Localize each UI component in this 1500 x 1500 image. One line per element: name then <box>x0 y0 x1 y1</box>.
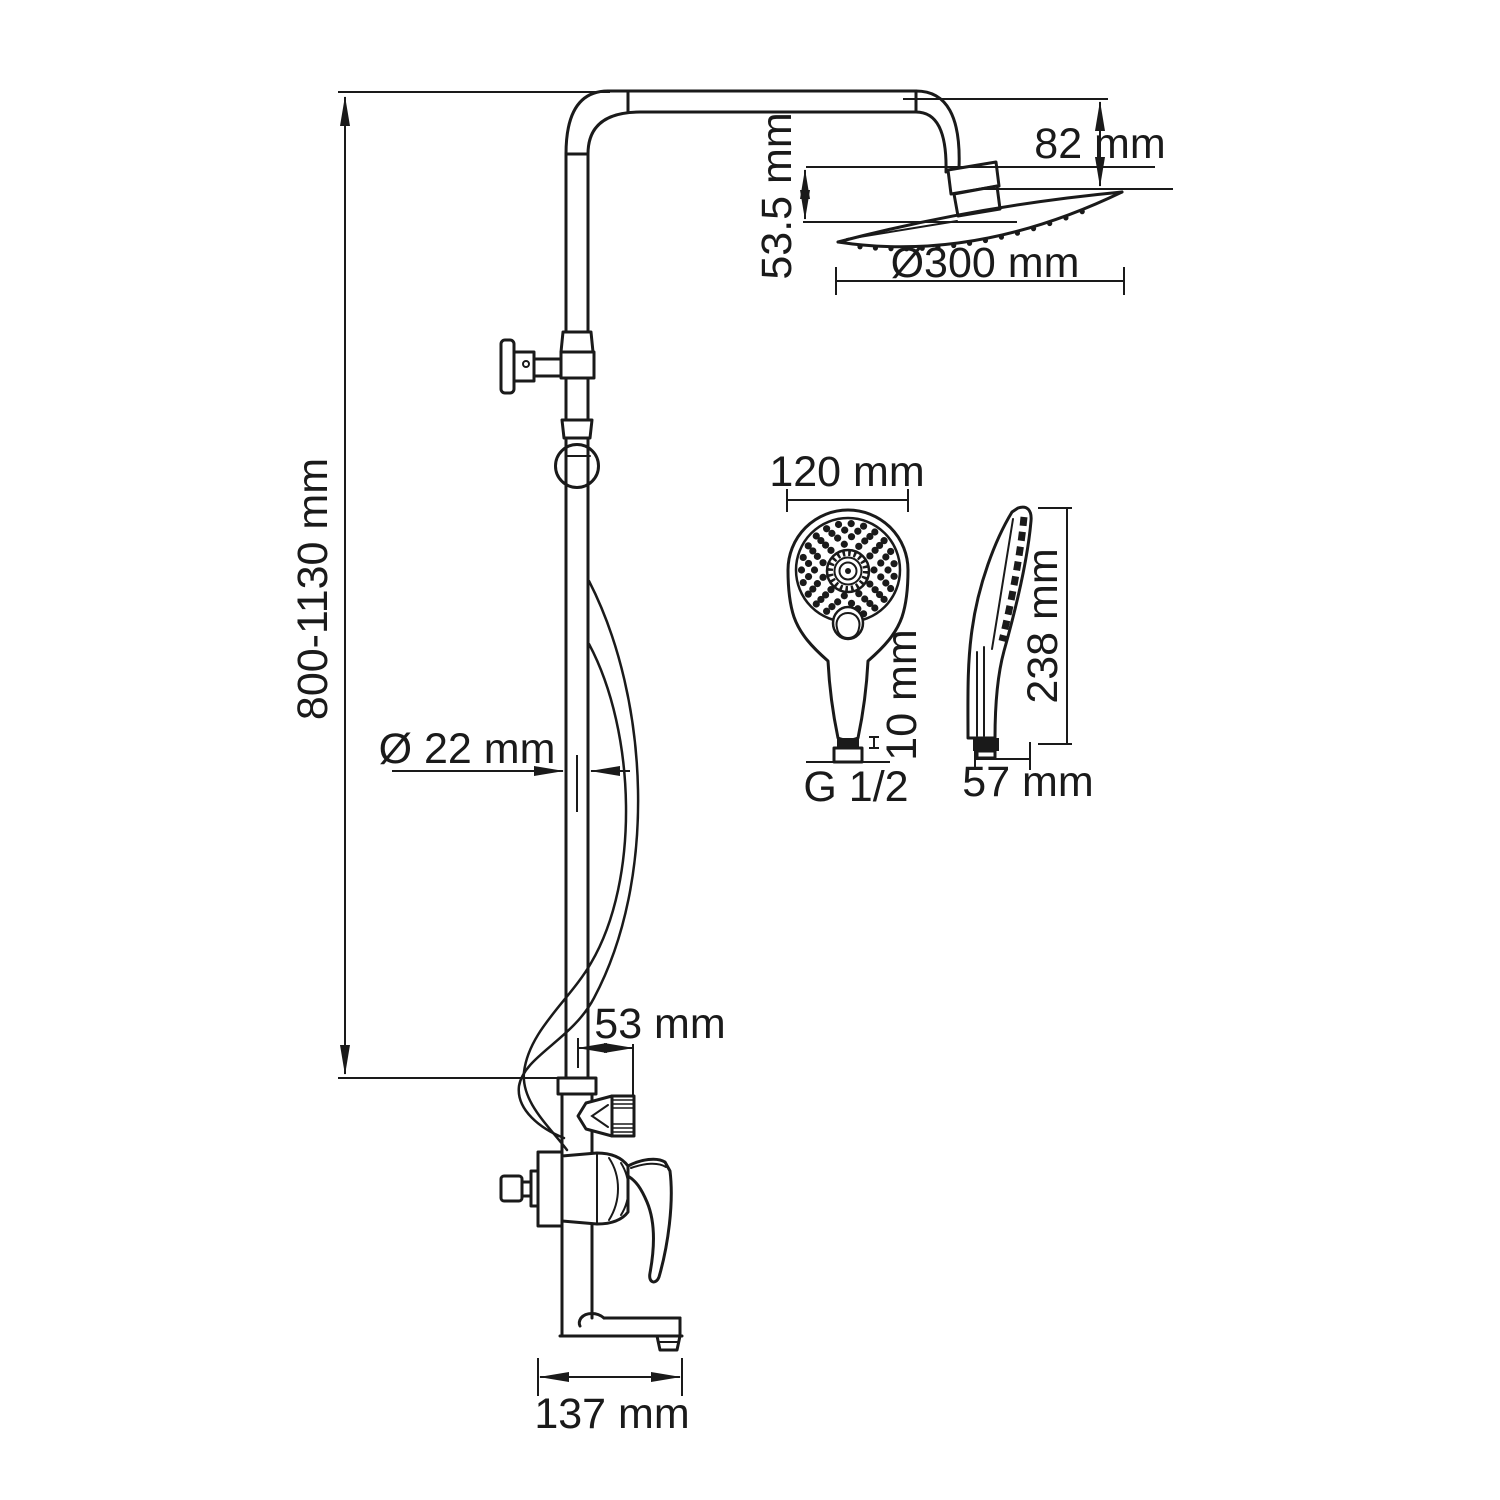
holder-knob <box>501 340 514 393</box>
hand-shower-width-dimension: 120 mm <box>769 448 924 512</box>
rain-shower-head <box>838 162 1122 251</box>
outlet-offset-label: 53 mm <box>594 1000 725 1048</box>
escutcheon-plate <box>538 1152 562 1226</box>
connector-nut <box>834 748 862 762</box>
nozzle-dot <box>1080 209 1085 214</box>
hand-shower-depth-label: 57 mm <box>962 758 1093 806</box>
side-connector-nut <box>973 738 999 751</box>
mixer-body-top <box>558 1078 596 1094</box>
nozzle-dot <box>800 554 807 561</box>
nozzle-dot <box>805 560 812 567</box>
nozzle-dot <box>855 543 862 550</box>
overall-height-label: 800-1130 mm <box>289 458 337 720</box>
nozzle-dot <box>854 528 861 535</box>
mixer-handle <box>628 1159 671 1282</box>
nozzle-dot <box>800 579 807 586</box>
head-drop-label: 82 mm <box>1034 120 1165 168</box>
spout-length-dimension: 137 mm <box>534 1358 689 1438</box>
pipe-diameter-label: Ø 22 mm <box>379 725 556 773</box>
thread-size-label: G 1/2 <box>803 763 908 811</box>
nozzle-dot <box>848 533 855 540</box>
nozzle-dot <box>871 528 878 535</box>
spout <box>560 1314 682 1351</box>
nozzle-dot <box>880 596 887 603</box>
nozzle-dot <box>827 547 834 554</box>
thread-length-label: 10 mm <box>878 629 926 760</box>
nozzle-dot <box>841 541 848 548</box>
nozzle-dot <box>841 527 848 534</box>
slider-holder <box>501 332 594 438</box>
nozzle-dot <box>880 537 887 544</box>
technical-drawing-canvas: 800-1130 mm Ø 22 mm <box>0 0 1500 1500</box>
nozzle-dot <box>1031 226 1036 231</box>
nozzle-dot <box>811 566 818 573</box>
nozzle-dot <box>887 548 894 555</box>
nozzle-dot <box>873 245 878 250</box>
overall-height-dimension: 800-1130 mm <box>289 92 610 1078</box>
spout-length-label: 137 mm <box>534 1390 689 1438</box>
nozzle-dot <box>819 574 826 581</box>
nozzle-dot <box>890 560 897 567</box>
nozzle-dot <box>877 559 884 566</box>
outlet-offset-dimension: 53 mm <box>578 1000 726 1098</box>
nozzle-dot <box>813 600 820 607</box>
mixer <box>501 1078 671 1336</box>
nozzle-dot <box>834 598 841 605</box>
hand-shower-width-label: 120 mm <box>769 448 924 496</box>
riser-pipe <box>566 154 588 1078</box>
nozzle-dot <box>835 521 842 528</box>
thread-length-dimension: 10 mm <box>869 629 926 760</box>
shower-system-drawing: 800-1130 mm Ø 22 mm <box>0 0 1500 1500</box>
nozzle-dot <box>887 585 894 592</box>
nozzle-dot <box>870 566 877 573</box>
nozzle-dot <box>860 523 867 530</box>
nozzle-dot <box>823 525 830 532</box>
nozzle-dot <box>857 244 862 249</box>
nozzle-dot <box>805 591 812 598</box>
nozzle-dot <box>1063 215 1068 220</box>
nozzle-dot <box>866 552 873 559</box>
pipe-diameter-dimension: Ø 22 mm <box>379 725 630 812</box>
nozzle-dot <box>819 559 826 566</box>
nozzle-dot <box>1047 221 1052 226</box>
head-offset-label: 53.5 mm <box>753 112 801 279</box>
hose-connector <box>612 1096 634 1136</box>
nozzle-dot <box>798 566 805 573</box>
temperature-knob <box>501 1176 522 1201</box>
nozzle-dot <box>834 535 841 542</box>
nozzle-dot <box>823 608 830 615</box>
nozzle-dot <box>1015 231 1020 236</box>
nozzle-dot <box>813 532 820 539</box>
nozzle-dot <box>805 542 812 549</box>
thread-size: G 1/2 <box>803 763 908 811</box>
nozzle-dot <box>884 566 891 573</box>
holder-ring <box>556 445 599 488</box>
nozzle-dot <box>882 579 889 586</box>
nozzle-dot <box>890 573 897 580</box>
head-diameter-label: Ø300 mm <box>891 239 1080 287</box>
nozzle-dot <box>848 520 855 527</box>
hand-shower-length-label: 238 mm <box>1019 548 1067 703</box>
nozzle-dot <box>877 573 884 580</box>
diverter <box>578 1096 612 1136</box>
nozzle-dot <box>805 573 812 580</box>
nozzle-dot <box>871 604 878 611</box>
nozzle-dot <box>882 553 889 560</box>
